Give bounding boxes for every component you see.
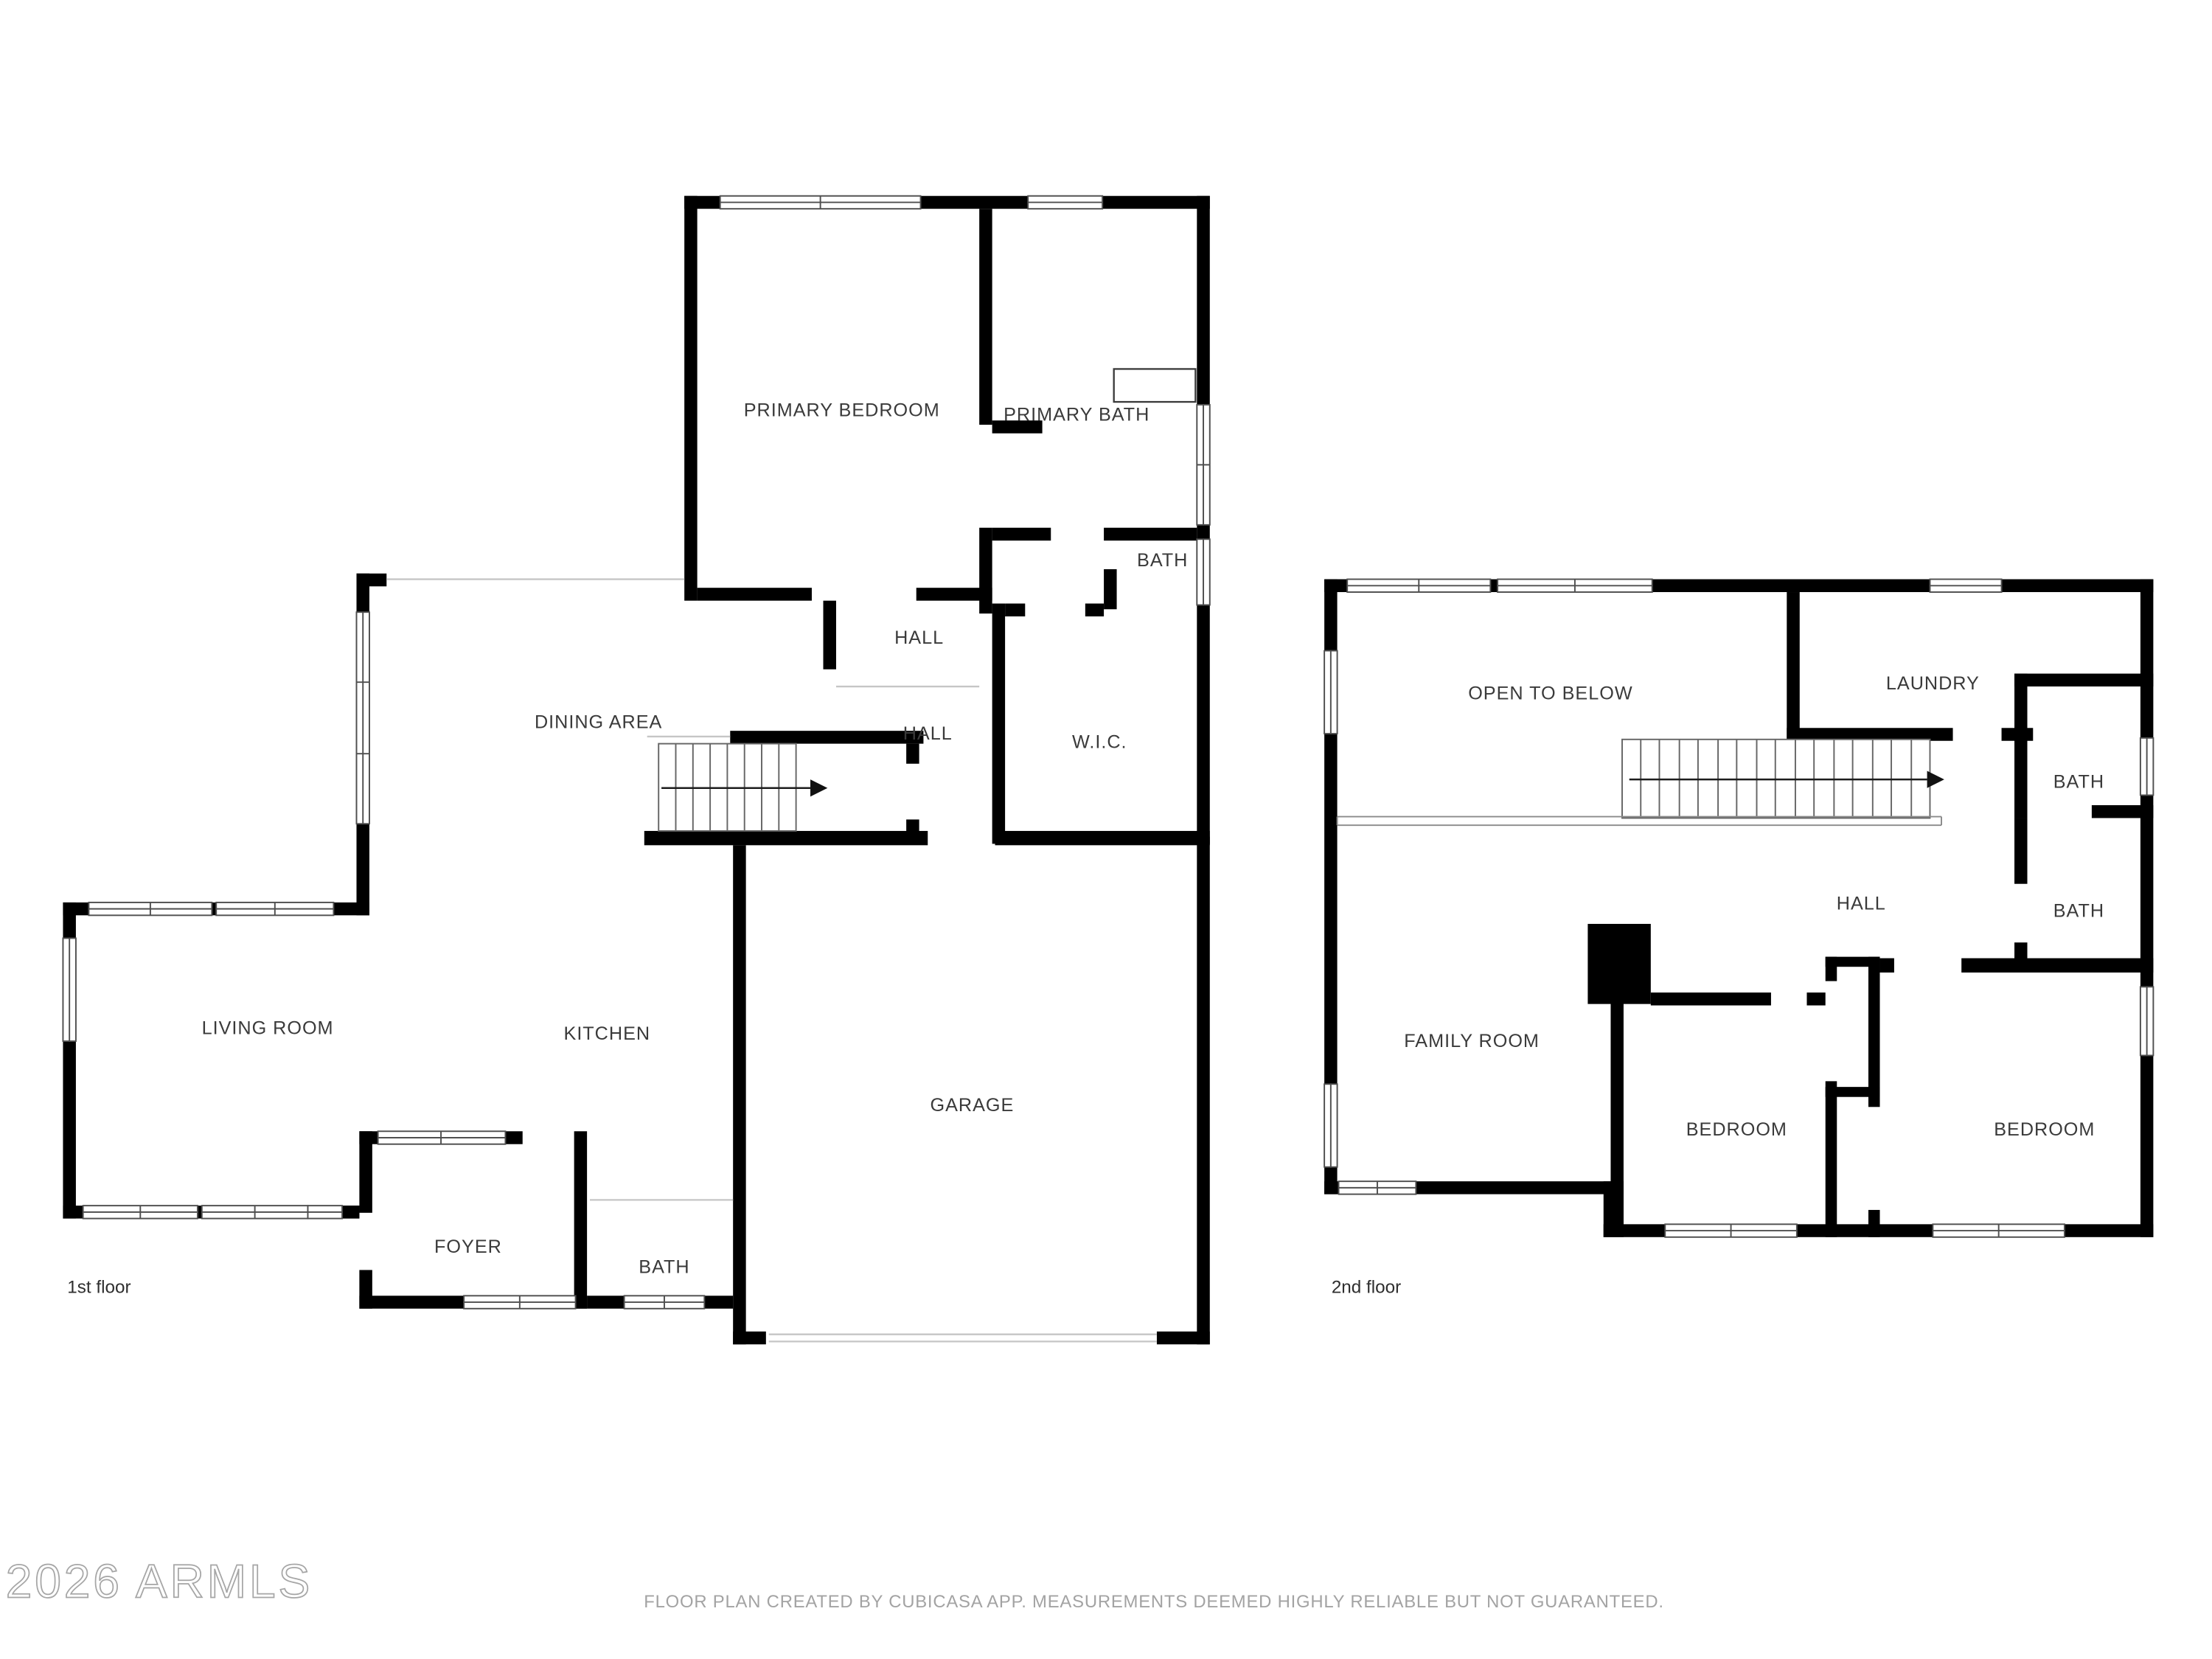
stairs-second-floor <box>1622 740 1944 818</box>
stair-direction-arrow-2f <box>1927 771 1944 787</box>
room-label-primary-bath: PRIMARY BATH <box>1004 404 1150 425</box>
room-label-dining: DINING AREA <box>535 712 662 732</box>
stairs-first-floor <box>658 744 827 831</box>
room-label-bedroom-right: BEDROOM <box>1994 1119 2095 1140</box>
room-label-foyer: FOYER <box>434 1237 502 1257</box>
room-label-bath-upper: BATH <box>1137 550 1188 571</box>
room-label-laundry: LAUNDRY <box>1886 673 1980 694</box>
room-label-open-to-below: OPEN TO BELOW <box>1468 684 1632 704</box>
room-label-bedroom-left: BEDROOM <box>1686 1119 1787 1140</box>
room-label-hall-lower: HALL <box>903 723 953 744</box>
first-floor-open-boundaries <box>386 580 1157 1342</box>
footer-text: FLOOR PLAN CREATED BY CUBICASA APP. MEAS… <box>644 1592 1664 1612</box>
room-label-hall-upper: HALL <box>894 627 944 648</box>
room-label-wic: W.I.C. <box>1072 731 1127 752</box>
floor-label-second: 2nd floor <box>1332 1277 1401 1297</box>
watermark-text: 2026 ARMLS <box>6 1555 313 1608</box>
room-label-family-room: FAMILY ROOM <box>1404 1031 1540 1051</box>
stair-direction-arrow <box>810 779 827 796</box>
first-floor-windows <box>63 196 1209 1309</box>
room-label-bath-lower: BATH <box>639 1256 689 1277</box>
room-label-primary-bedroom: PRIMARY BEDROOM <box>744 400 940 420</box>
room-label-hall-2f: HALL <box>1837 894 1886 914</box>
room-label-living: LIVING ROOM <box>202 1018 334 1038</box>
floor-plan-page: PRIMARY BEDROOM PRIMARY BATH BATH HALL H… <box>0 0 2212 1659</box>
room-label-bath-lower-2f: BATH <box>2053 900 2104 921</box>
first-floor-plan: PRIMARY BEDROOM PRIMARY BATH BATH HALL H… <box>63 196 1209 1345</box>
floor-plan-canvas: PRIMARY BEDROOM PRIMARY BATH BATH HALL H… <box>0 0 2212 1659</box>
room-label-bath-upper-2f: BATH <box>2053 772 2104 793</box>
vanity-counter <box>1114 369 1196 402</box>
room-label-garage: GARAGE <box>931 1095 1015 1116</box>
floor-label-first: 1st floor <box>67 1277 131 1297</box>
second-floor-plan: OPEN TO BELOW LAUNDRY BATH BATH HALL FAM… <box>1324 580 2153 1298</box>
room-label-kitchen: KITCHEN <box>564 1023 651 1044</box>
first-floor-walls <box>63 196 1209 1345</box>
